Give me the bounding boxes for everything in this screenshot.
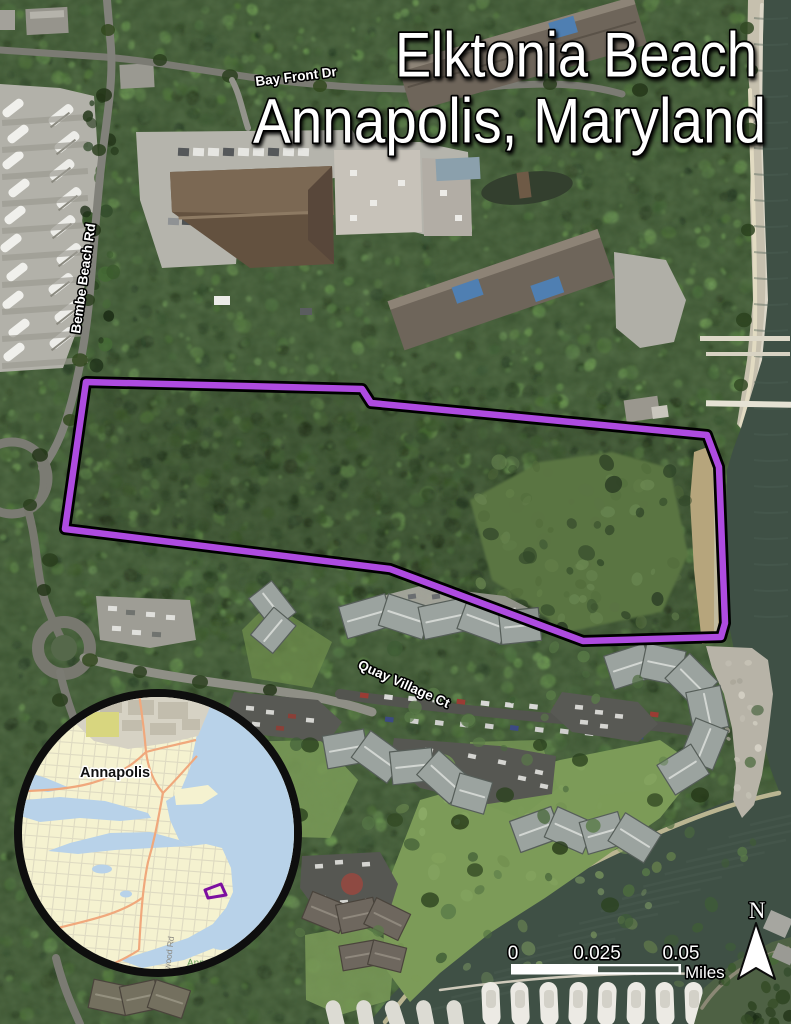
svg-text:N: N	[749, 898, 766, 923]
svg-text:Miles: Miles	[685, 963, 725, 982]
svg-text:Annapolis: Annapolis	[80, 765, 150, 781]
svg-text:Elktonia Beach: Elktonia Beach	[395, 21, 757, 91]
svg-text:0.05: 0.05	[663, 943, 700, 964]
svg-text:0: 0	[508, 943, 519, 964]
svg-text:Annapolis, Maryland: Annapolis, Maryland	[253, 87, 766, 157]
svg-text:0.025: 0.025	[573, 943, 621, 964]
